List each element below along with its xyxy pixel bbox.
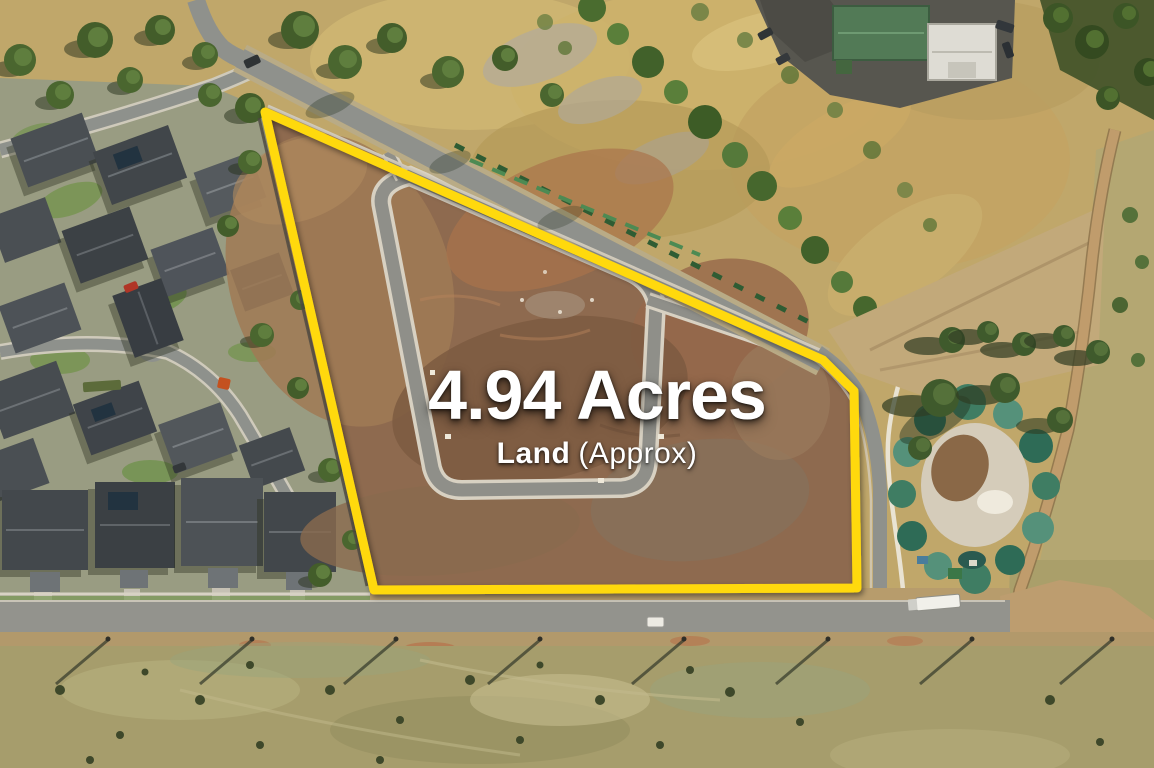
bottom-paddock bbox=[0, 637, 1154, 768]
green-shed bbox=[948, 568, 962, 579]
aerial-photo: 4.94 Acres Land(Approx) bbox=[0, 0, 1154, 768]
white-farm-building bbox=[928, 24, 996, 80]
white-car-bottom-road bbox=[647, 617, 664, 627]
aerial-photo-canvas bbox=[0, 0, 1154, 768]
blue-pallets bbox=[917, 556, 928, 564]
